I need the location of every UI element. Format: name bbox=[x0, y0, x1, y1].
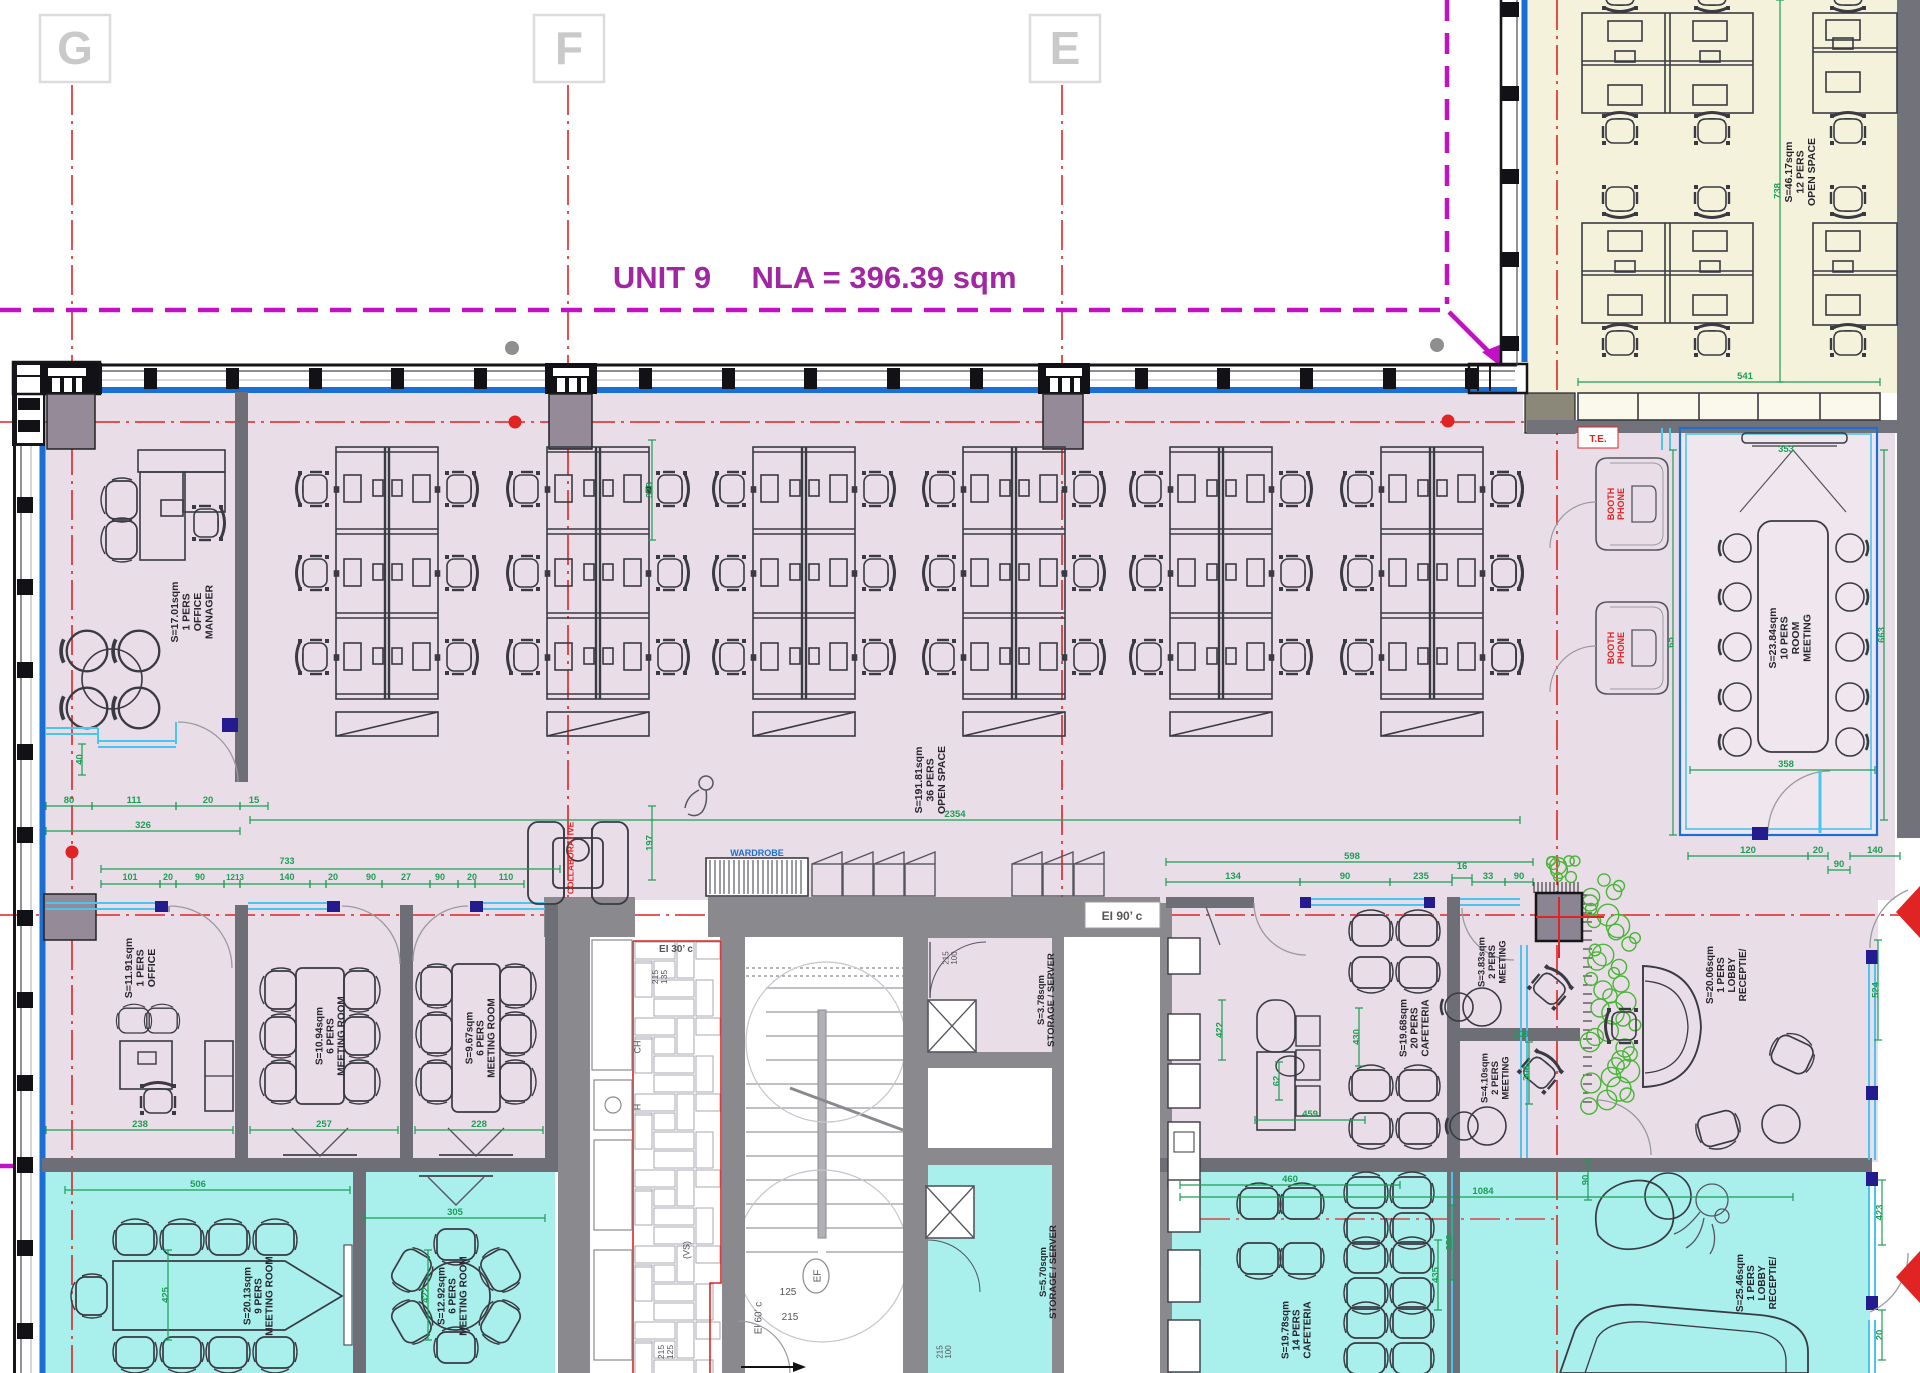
svg-text:WARDROBE: WARDROBE bbox=[730, 848, 784, 858]
svg-text:125: 125 bbox=[665, 1345, 675, 1359]
svg-text:430: 430 bbox=[1351, 1029, 1362, 1045]
svg-text:EI 30’ c: EI 30’ c bbox=[659, 944, 693, 955]
svg-text:PHONE: PHONE bbox=[1616, 632, 1626, 664]
svg-text:90: 90 bbox=[1514, 871, 1525, 882]
svg-text:358: 358 bbox=[1444, 1235, 1455, 1251]
svg-text:STORAGE / SERVER: STORAGE / SERVER bbox=[1046, 953, 1057, 1047]
svg-text:27: 27 bbox=[401, 872, 411, 882]
svg-text:228: 228 bbox=[471, 1119, 487, 1130]
svg-text:90: 90 bbox=[1340, 871, 1351, 882]
svg-text:6 PERS: 6 PERS bbox=[447, 1278, 458, 1314]
svg-text:1 PERS: 1 PERS bbox=[1716, 957, 1727, 993]
svg-text:MANAGER: MANAGER bbox=[204, 584, 216, 639]
svg-text:F: F bbox=[555, 22, 583, 74]
svg-text:541: 541 bbox=[1737, 371, 1754, 382]
svg-text:328: 328 bbox=[644, 482, 655, 498]
svg-text:MEETING: MEETING bbox=[1802, 614, 1814, 662]
svg-text:257: 257 bbox=[316, 1119, 332, 1130]
svg-text:6 PERS: 6 PERS bbox=[475, 1020, 486, 1056]
svg-text:RECEPTIE/: RECEPTIE/ bbox=[1768, 1256, 1779, 1309]
svg-text:36 PERS: 36 PERS bbox=[924, 758, 936, 801]
svg-text:326: 326 bbox=[135, 820, 151, 831]
svg-text:MEETING ROOM: MEETING ROOM bbox=[264, 1256, 275, 1335]
svg-text:235: 235 bbox=[1413, 871, 1430, 882]
svg-text:120: 120 bbox=[1740, 845, 1756, 856]
svg-text:20: 20 bbox=[163, 872, 173, 882]
svg-text:OFFICE: OFFICE bbox=[146, 949, 158, 988]
svg-text:STORAGE / SERVER: STORAGE / SERVER bbox=[1048, 1225, 1059, 1319]
svg-text:80: 80 bbox=[64, 795, 75, 806]
svg-text:663: 663 bbox=[1876, 627, 1887, 643]
svg-text:S=4.10sqm: S=4.10sqm bbox=[1480, 1053, 1491, 1103]
svg-text:LOBBY: LOBBY bbox=[1727, 957, 1738, 992]
svg-text:RECEPTIE/: RECEPTIE/ bbox=[1738, 948, 1749, 1001]
svg-text:197: 197 bbox=[644, 835, 655, 851]
svg-text:738: 738 bbox=[1772, 183, 1783, 199]
svg-text:S=23.84sqm: S=23.84sqm bbox=[1767, 607, 1779, 668]
svg-text:H: H bbox=[632, 1104, 642, 1111]
svg-text:S=46.17sqm: S=46.17sqm bbox=[1783, 141, 1795, 202]
svg-text:140: 140 bbox=[1867, 845, 1883, 856]
svg-text:OPEN SPACE: OPEN SPACE bbox=[936, 746, 948, 814]
svg-text:90: 90 bbox=[435, 872, 445, 882]
svg-text:9 PERS: 9 PERS bbox=[253, 1278, 264, 1314]
svg-text:306: 306 bbox=[1521, 1065, 1532, 1081]
svg-text:15: 15 bbox=[249, 795, 260, 806]
svg-text:215: 215 bbox=[935, 1345, 944, 1359]
svg-text:ROOM: ROOM bbox=[1790, 621, 1802, 654]
svg-text:1084: 1084 bbox=[1472, 1186, 1494, 1197]
svg-text:S=9.67sqm: S=9.67sqm bbox=[464, 1012, 475, 1065]
svg-text:90: 90 bbox=[1834, 859, 1845, 870]
svg-text:20 PERS: 20 PERS bbox=[1409, 1007, 1420, 1048]
svg-text:422: 422 bbox=[1214, 1022, 1225, 1038]
svg-text:S=11.91sqm: S=11.91sqm bbox=[123, 938, 135, 998]
svg-text:T.E.: T.E. bbox=[1589, 434, 1606, 445]
svg-text:MEETING ROOM: MEETING ROOM bbox=[336, 996, 347, 1075]
svg-text:PHONE: PHONE bbox=[1616, 488, 1626, 520]
svg-text:2 PERS: 2 PERS bbox=[1490, 1061, 1501, 1095]
svg-text:G: G bbox=[57, 22, 93, 74]
svg-text:100: 100 bbox=[944, 1345, 953, 1359]
svg-text:6 PERS: 6 PERS bbox=[325, 1018, 336, 1054]
svg-text:101: 101 bbox=[122, 872, 137, 882]
svg-text:CAFETERIA: CAFETERIA bbox=[1420, 999, 1431, 1056]
svg-text:NLA = 396.39 sqm: NLA = 396.39 sqm bbox=[751, 260, 1016, 295]
svg-text:2 PERS: 2 PERS bbox=[1487, 945, 1498, 979]
svg-text:E: E bbox=[1050, 22, 1081, 74]
svg-text:2354: 2354 bbox=[944, 809, 966, 820]
svg-text:MEETING: MEETING bbox=[1501, 1056, 1512, 1099]
svg-text:CH: CH bbox=[632, 1041, 642, 1054]
svg-text:358: 358 bbox=[1778, 759, 1794, 770]
svg-text:S=10.94sqm: S=10.94sqm bbox=[314, 1007, 325, 1065]
svg-text:506: 506 bbox=[190, 1179, 206, 1190]
svg-text:435: 435 bbox=[1430, 1266, 1441, 1283]
svg-text:90: 90 bbox=[195, 872, 205, 882]
svg-text:S=191.81sqm: S=191.81sqm bbox=[913, 747, 925, 814]
svg-text:1 PERS: 1 PERS bbox=[1746, 1265, 1757, 1301]
svg-text:MEETING: MEETING bbox=[1498, 940, 1509, 983]
svg-text:El 60’ c: El 60’ c bbox=[753, 1302, 764, 1334]
svg-text:S=20.06sqm: S=20.06sqm bbox=[1705, 946, 1716, 1004]
svg-text:134: 134 bbox=[1225, 871, 1242, 882]
svg-text:CAFETERIA: CAFETERIA bbox=[1302, 1301, 1313, 1358]
svg-text:S=25.46sqm: S=25.46sqm bbox=[1735, 1254, 1746, 1312]
svg-text:EF: EF bbox=[812, 1270, 823, 1283]
svg-text:MEETING ROOM: MEETING ROOM bbox=[458, 1256, 469, 1335]
svg-text:125: 125 bbox=[780, 1287, 797, 1298]
svg-text:S=3.83sqm: S=3.83sqm bbox=[1477, 937, 1488, 987]
svg-text:423: 423 bbox=[1874, 1205, 1885, 1221]
svg-text:BOOTH: BOOTH bbox=[1606, 632, 1616, 665]
svg-text:215: 215 bbox=[650, 970, 660, 984]
svg-text:90: 90 bbox=[1580, 1175, 1591, 1186]
svg-text:598: 598 bbox=[1344, 851, 1360, 862]
svg-text:33: 33 bbox=[1483, 871, 1494, 882]
svg-text:62: 62 bbox=[1271, 1076, 1282, 1087]
svg-text:14 PERS: 14 PERS bbox=[1291, 1309, 1302, 1350]
svg-text:12 PERS: 12 PERS bbox=[1794, 150, 1806, 193]
svg-text:238: 238 bbox=[132, 1119, 148, 1130]
svg-text:20: 20 bbox=[1874, 1330, 1885, 1341]
svg-text:S=19.68sqm: S=19.68sqm bbox=[1398, 999, 1409, 1057]
svg-text:1 PERS: 1 PERS bbox=[134, 949, 146, 986]
svg-text:S=12.92sqm: S=12.92sqm bbox=[436, 1267, 447, 1325]
svg-text:S=19.78sqm: S=19.78sqm bbox=[1280, 1301, 1291, 1359]
svg-text:90: 90 bbox=[366, 872, 376, 882]
svg-text:S=17.01sqm: S=17.01sqm bbox=[169, 581, 181, 642]
svg-text:16: 16 bbox=[1457, 861, 1468, 872]
svg-text:20: 20 bbox=[328, 872, 338, 882]
svg-text:10 PERS: 10 PERS bbox=[1779, 616, 1791, 659]
svg-text:111: 111 bbox=[127, 795, 143, 806]
svg-text:135: 135 bbox=[659, 970, 669, 984]
svg-text:20: 20 bbox=[203, 795, 214, 806]
svg-text:(VS): (VS) bbox=[681, 1241, 691, 1259]
svg-text:215: 215 bbox=[782, 1312, 799, 1323]
svg-text:140: 140 bbox=[279, 872, 294, 882]
svg-text:S=20.13sqm: S=20.13sqm bbox=[242, 1267, 253, 1325]
svg-text:S=3.78sqm: S=3.78sqm bbox=[1036, 975, 1047, 1025]
svg-text:110: 110 bbox=[499, 872, 514, 882]
svg-text:1213: 1213 bbox=[226, 873, 244, 882]
svg-text:425: 425 bbox=[160, 1286, 171, 1303]
svg-text:422: 422 bbox=[420, 1287, 431, 1303]
svg-text:524: 524 bbox=[1870, 981, 1881, 998]
svg-text:305: 305 bbox=[447, 1207, 464, 1218]
svg-text:100: 100 bbox=[950, 951, 959, 965]
svg-text:733: 733 bbox=[279, 856, 294, 866]
svg-text:COLLABORATIVE: COLLABORATIVE bbox=[565, 821, 575, 894]
svg-text:40: 40 bbox=[74, 754, 85, 765]
svg-text:215: 215 bbox=[656, 1345, 666, 1359]
svg-text:208: 208 bbox=[1513, 1029, 1528, 1039]
svg-text:353: 353 bbox=[1778, 444, 1794, 455]
svg-text:S=5.70sqm: S=5.70sqm bbox=[1038, 1247, 1049, 1297]
svg-text:LOBBY: LOBBY bbox=[1757, 1265, 1768, 1300]
svg-text:OPEN SPACE: OPEN SPACE bbox=[1806, 138, 1818, 206]
svg-text:EI 90’ c: EI 90’ c bbox=[1102, 909, 1143, 923]
svg-text:BOOTH: BOOTH bbox=[1606, 488, 1616, 521]
svg-text:OFFICE: OFFICE bbox=[192, 593, 204, 632]
svg-text:1 PERS: 1 PERS bbox=[181, 593, 193, 630]
svg-text:460: 460 bbox=[1282, 1174, 1298, 1185]
svg-text:MEETING ROOM: MEETING ROOM bbox=[486, 998, 497, 1077]
svg-text:20: 20 bbox=[1813, 845, 1824, 856]
svg-text:65: 65 bbox=[1665, 637, 1676, 648]
svg-text:UNIT 9: UNIT 9 bbox=[613, 260, 711, 295]
svg-text:459: 459 bbox=[1302, 1109, 1318, 1120]
